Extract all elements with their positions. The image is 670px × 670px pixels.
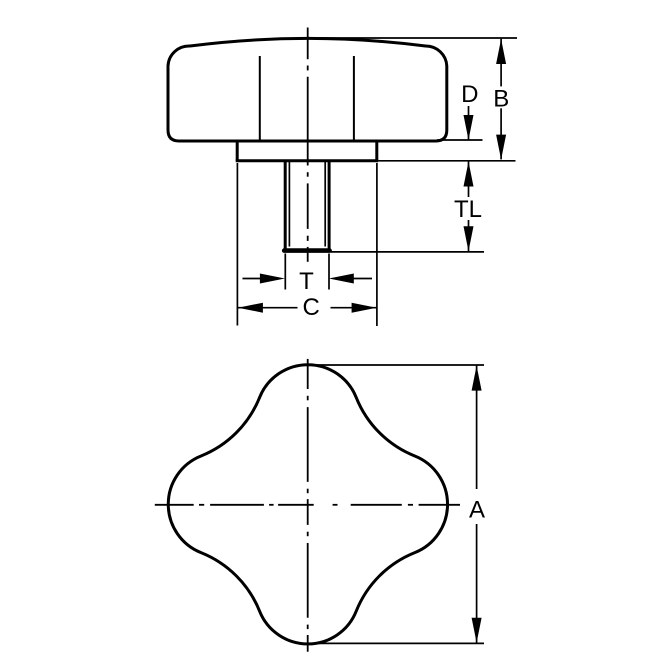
svg-text:T: T: [299, 268, 314, 295]
svg-text:A: A: [469, 497, 485, 524]
svg-text:D: D: [461, 81, 478, 108]
svg-text:C: C: [303, 294, 320, 321]
svg-text:B: B: [493, 85, 509, 112]
svg-text:TL: TL: [454, 196, 482, 223]
